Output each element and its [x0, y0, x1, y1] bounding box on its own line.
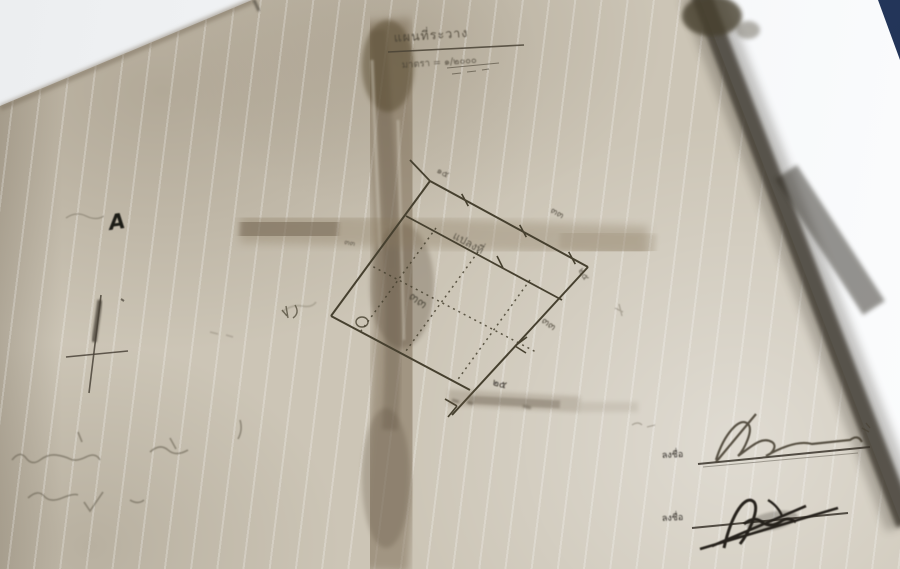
signature-block-2: ลงชื่อ [661, 500, 848, 549]
faint-mark-near-letter [66, 214, 104, 219]
plot-edge-top-right: ๓๓ [549, 205, 566, 221]
signature-block-1: ลงชื่อ [661, 414, 870, 467]
map-sketch-layer: แผนที่ระวาง มาตรา = ๑/๒๐๐๐ A [0, 0, 900, 569]
faded-stamp-smudge [448, 390, 638, 413]
road-horizontal [240, 226, 656, 246]
plot-corner-bottom: ๒๕ [491, 377, 508, 391]
signature-label-1: ลงชื่อ [661, 447, 683, 461]
photo-of-old-survey-document: แผนที่ระวาง มาตรา = ๑/๒๐๐๐ A [0, 0, 900, 569]
plot-edge-left: ๓๓ [344, 237, 357, 248]
faint-handwriting-bottom-left [12, 302, 316, 511]
plot-sketch [282, 160, 588, 417]
plot-corner-top: ๑๕ [435, 166, 451, 181]
signature-label-2: ลงชื่อ [661, 510, 683, 524]
north-letter-mark: A [105, 209, 126, 235]
north-arrow [66, 295, 128, 393]
paper-edge-shadow [0, 0, 254, 108]
plot-corner-right: ๒๕ [575, 267, 590, 283]
